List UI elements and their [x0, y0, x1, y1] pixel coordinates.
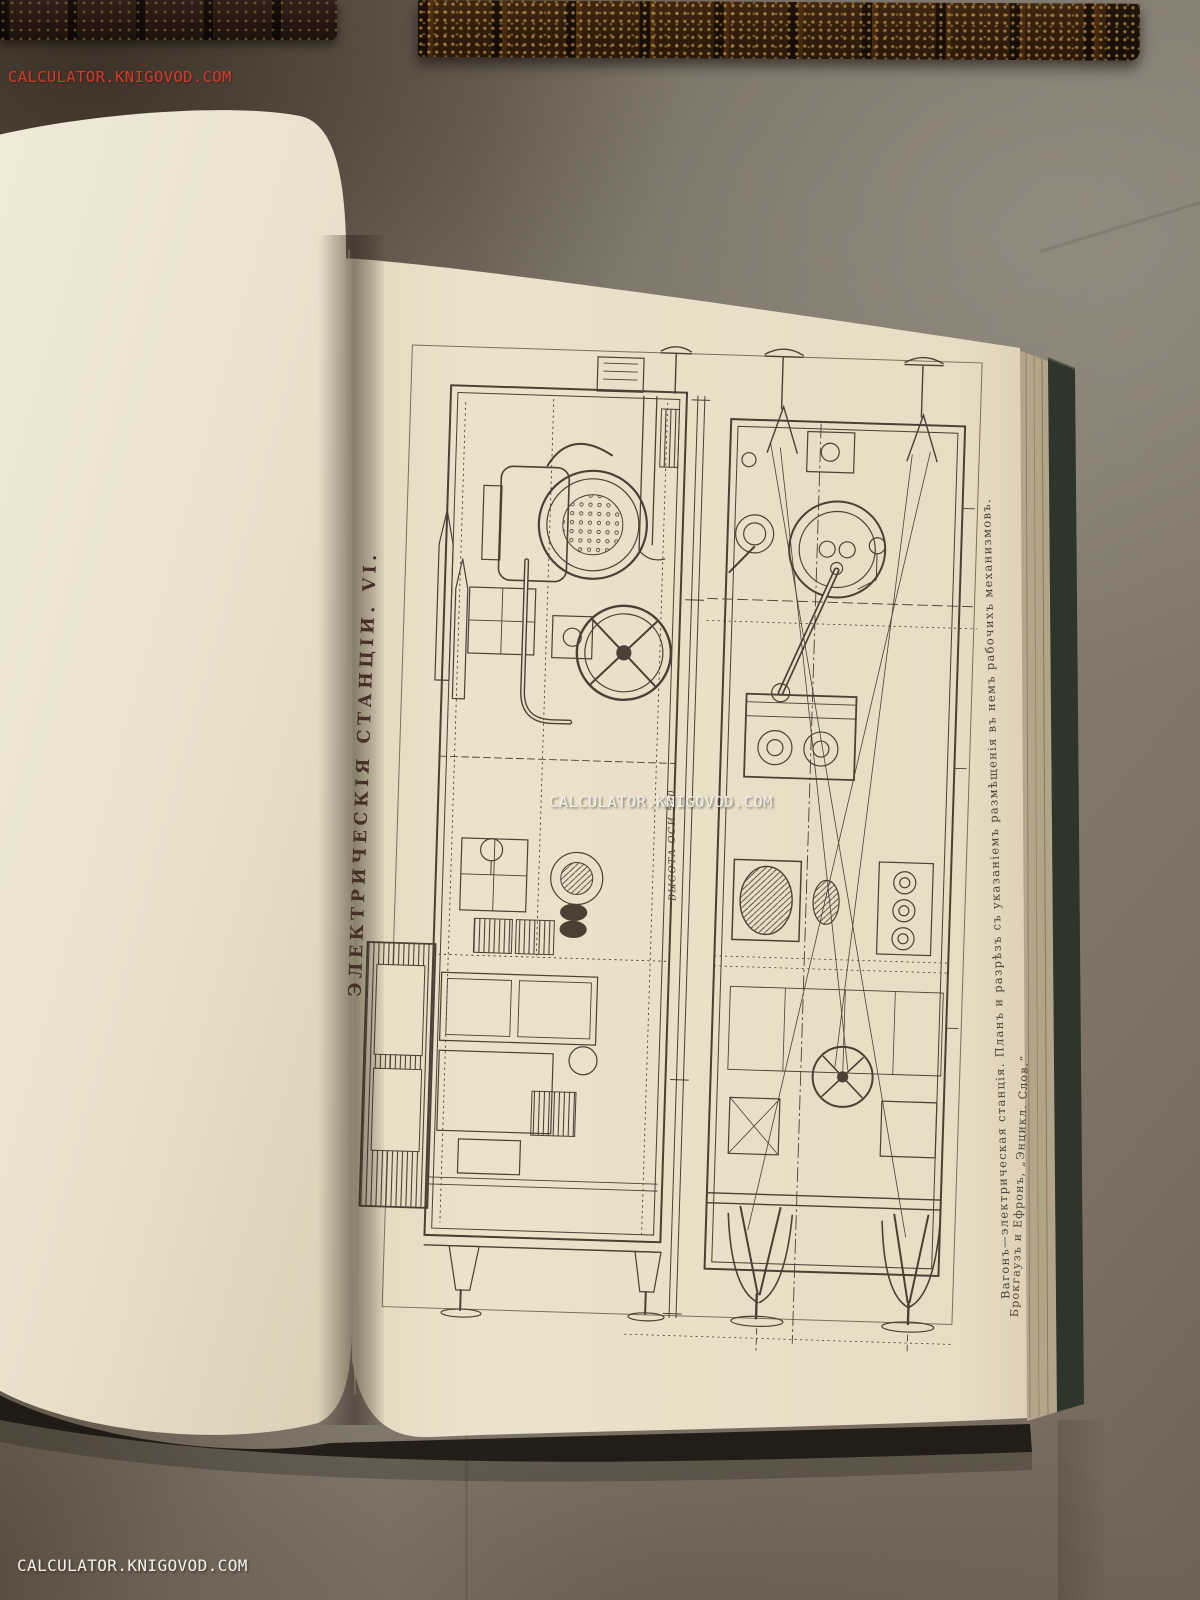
right-page — [342, 258, 1027, 1437]
left-page — [0, 110, 352, 1435]
watermark-bottom-left: CALCULATOR.KNIGOVOD.COM — [17, 1556, 248, 1575]
photo-scene: ЭЛЕКТРИЧЕСКІЯ СТАНЦІИ. VI. Вагонъ—электр… — [0, 0, 1200, 1600]
watermark-top-left: CALCULATOR.KNIGOVOD.COM — [8, 68, 232, 86]
watermark-center: CALCULATOR.KNIGOVOD.COM — [549, 793, 773, 811]
